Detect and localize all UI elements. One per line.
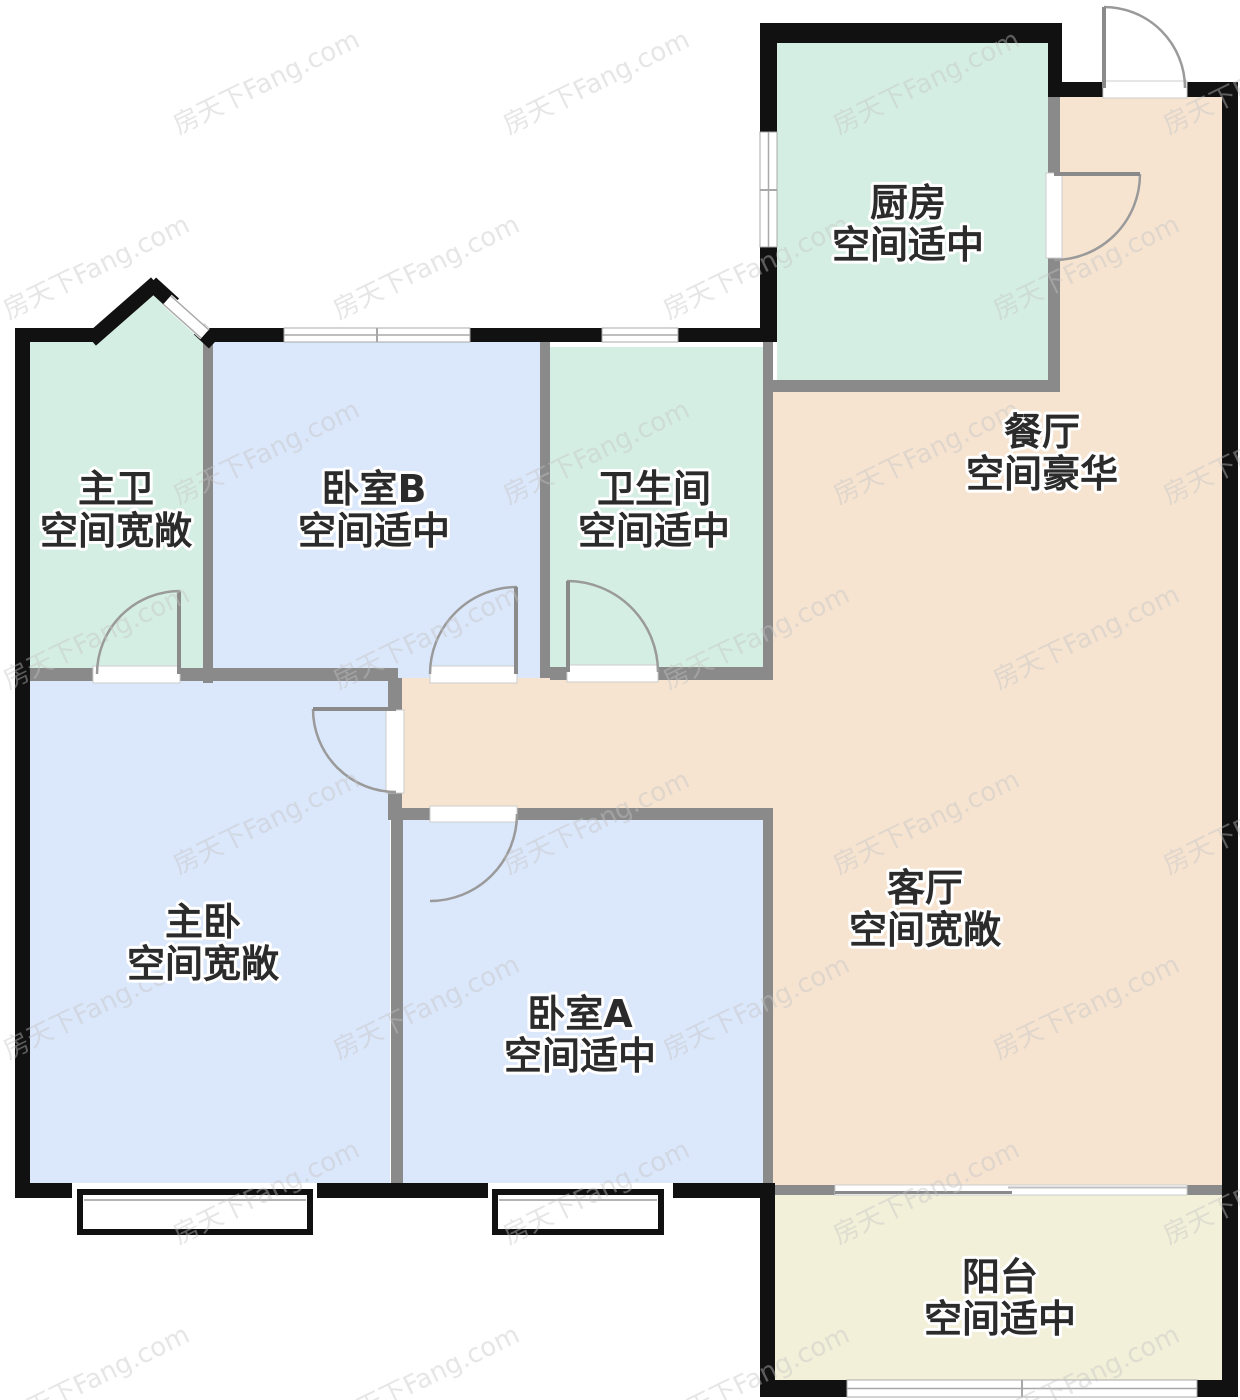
interior-wall-segment <box>391 810 403 1183</box>
room-living-name: 客厅 <box>887 866 963 910</box>
interior-wall-segment <box>203 342 213 683</box>
window <box>602 328 678 342</box>
door-opening <box>1046 173 1062 258</box>
door-opening <box>386 710 404 793</box>
entry-door <box>1104 7 1185 88</box>
interior-wall-segment <box>1048 97 1060 173</box>
interior-wall-segment <box>767 380 1052 392</box>
door-opening <box>430 806 517 822</box>
room-bathroom-quality: 空间适中 <box>578 509 730 553</box>
door-opening <box>567 665 658 682</box>
room-kitchen-name: 厨房 <box>870 181 946 225</box>
exterior-wall-segment <box>15 1183 72 1198</box>
window <box>760 132 777 247</box>
watermark-text: 房天下Fang.com <box>169 25 365 141</box>
exterior-wall-segment <box>1197 1380 1238 1397</box>
exterior-wall-segment <box>15 328 99 342</box>
interior-wall-segment <box>770 1185 835 1195</box>
watermark-text: 房天下Fang.com <box>0 1320 194 1400</box>
entry-door-arc <box>1104 7 1185 88</box>
room-master-bath-name: 主卫 <box>78 467 154 511</box>
room-balcony-name: 阳台 <box>962 1255 1038 1299</box>
exterior-wall-segment <box>317 1183 488 1198</box>
room-dining-quality: 空间豪华 <box>966 452 1118 496</box>
room-bathroom-label: 卫生间空间适中 <box>578 467 730 553</box>
watermark-text: 房天下Fang.com <box>329 1320 525 1400</box>
window <box>284 328 470 342</box>
room-balcony-quality: 空间适中 <box>924 1297 1076 1341</box>
room-master-bedroom-name: 主卧 <box>165 900 241 944</box>
door-opening <box>93 666 180 683</box>
door-opening <box>430 666 517 683</box>
balcony-sliding-door <box>835 1185 1187 1195</box>
room-bedroom-a-name: 卧室A <box>527 992 633 1036</box>
exterior-wall-segment <box>1048 23 1062 97</box>
exterior-wall-segment <box>673 1183 775 1198</box>
watermark-text: 房天下Fang.com <box>499 25 695 141</box>
floorplan-canvas: 房天下Fang.com房天下Fang.com房天下Fang.com房天下Fang… <box>0 0 1240 1400</box>
room-bedroom-b-name: 卧室B <box>322 467 427 511</box>
room-bathroom-name: 卫生间 <box>597 467 711 511</box>
room-bedroom-a-quality: 空间适中 <box>504 1034 656 1078</box>
door-opening <box>1103 81 1187 98</box>
room-master-bath-quality: 空间宽敞 <box>40 509 193 553</box>
interior-wall-segment <box>540 342 550 678</box>
exterior-wall-segment <box>1062 82 1103 97</box>
exterior-wall-segment <box>208 328 284 342</box>
room-living-quality: 空间宽敞 <box>849 908 1002 952</box>
exterior-wall-segment <box>15 328 30 1198</box>
room-kitchen-quality: 空间适中 <box>832 223 984 267</box>
room-dining-name: 餐厅 <box>1004 410 1080 454</box>
exterior-wall-segment <box>773 1380 847 1397</box>
floor-plan: 房天下Fang.com房天下Fang.com房天下Fang.com房天下Fang… <box>0 0 1240 1400</box>
exterior-wall-segment <box>470 328 602 342</box>
room-bedroom-b-quality: 空间适中 <box>298 509 450 553</box>
room-master-bedroom-quality: 空间宽敞 <box>127 942 280 986</box>
watermark-text: 房天下Fang.com <box>329 210 525 326</box>
